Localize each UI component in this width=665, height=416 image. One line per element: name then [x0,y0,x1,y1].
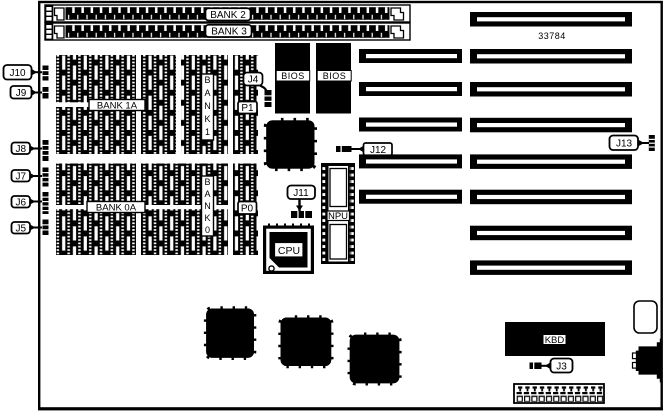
svg-text:BANK 1A: BANK 1A [97,101,138,112]
svg-text:N: N [204,101,211,111]
svg-text:J6: J6 [16,197,27,208]
svg-text:P0: P0 [241,204,254,215]
svg-text:K: K [204,114,210,124]
svg-text:J3: J3 [556,362,567,373]
svg-text:CPU: CPU [278,245,300,257]
svg-text:BANK 0A: BANK 0A [96,203,137,214]
svg-text:J4: J4 [248,75,259,86]
svg-text:0: 0 [205,225,210,235]
svg-text:BANK 2: BANK 2 [210,10,246,21]
svg-text:J11: J11 [293,188,309,199]
svg-text:J10: J10 [9,68,26,79]
svg-text:J8: J8 [16,144,27,155]
svg-text:J7: J7 [16,171,27,182]
svg-text:J12: J12 [370,145,387,156]
svg-text:BIOS: BIOS [323,71,347,81]
svg-text:A: A [204,88,210,98]
svg-text:BANK 3: BANK 3 [211,27,247,38]
svg-text:NPU: NPU [328,211,348,222]
svg-text:BIOS: BIOS [281,71,305,81]
svg-text:J9: J9 [16,88,27,99]
svg-text:K: K [204,213,210,223]
svg-text:J13: J13 [616,139,633,150]
svg-text:KBD: KBD [545,335,565,346]
svg-text:B: B [204,177,210,187]
svg-text:P1: P1 [241,103,254,114]
svg-text:N: N [204,201,211,211]
svg-text:J5: J5 [16,223,27,234]
svg-text:A: A [204,189,210,199]
svg-text:B: B [204,75,210,85]
svg-text:33784: 33784 [538,31,566,41]
svg-text:1: 1 [205,127,210,137]
